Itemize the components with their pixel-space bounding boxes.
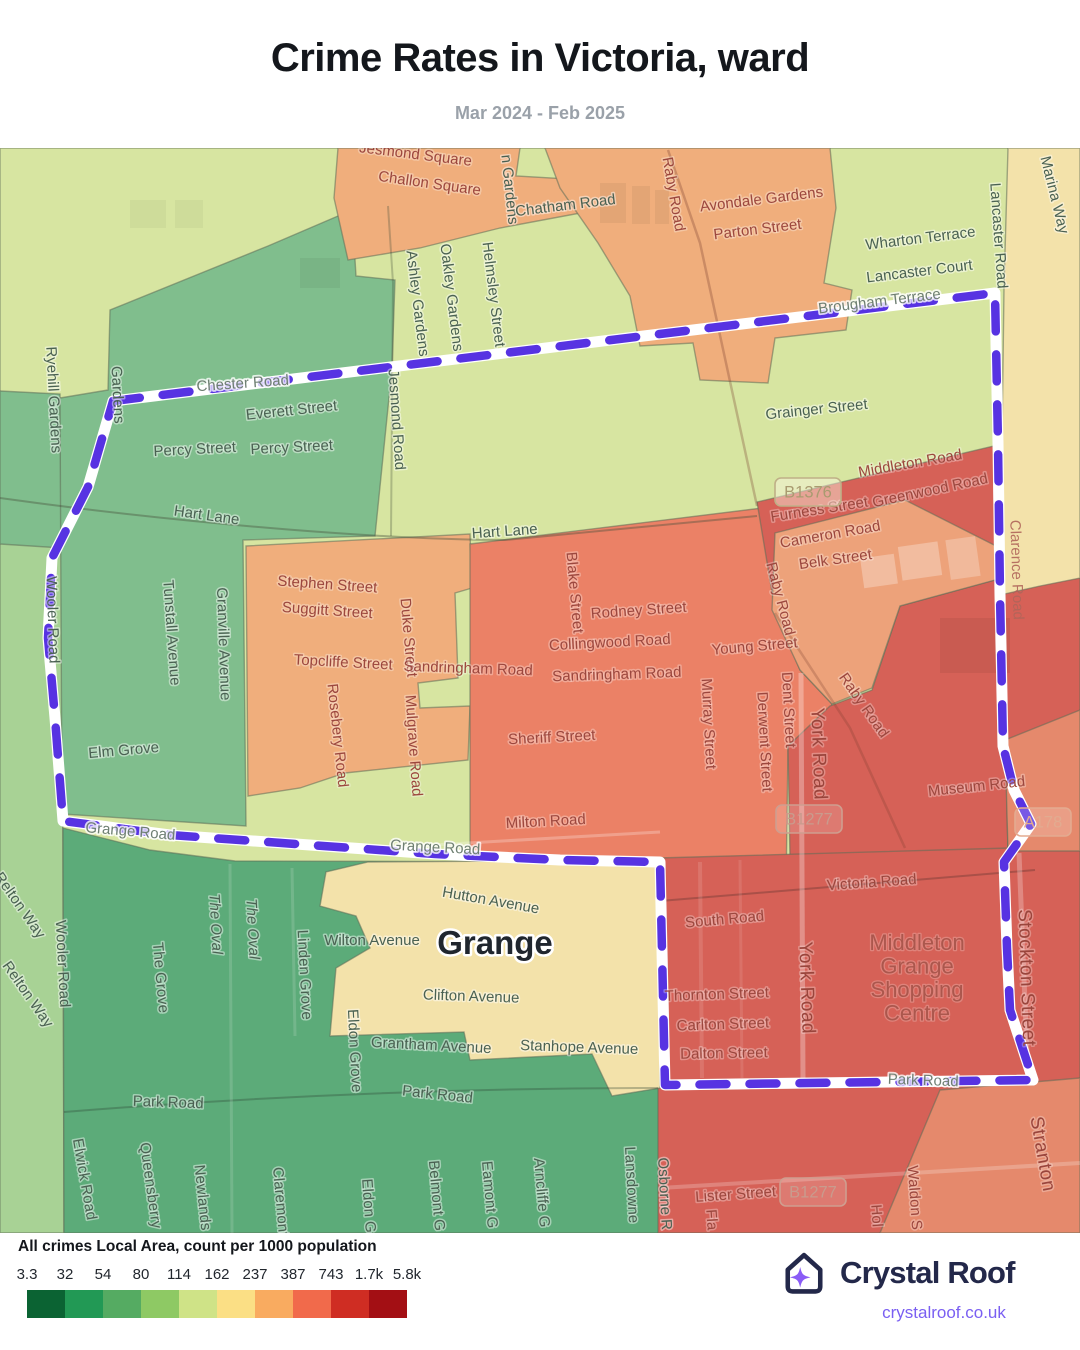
crime-map[interactable]: Jesmond SquareChallon Squaren GardensCha… [0, 148, 1080, 1233]
legend-tick: 387 [280, 1266, 305, 1283]
street-label: Wilton Avenue [324, 932, 420, 949]
svg-text:B1277: B1277 [785, 811, 833, 829]
legend-tick: 162 [204, 1266, 229, 1283]
street-label: Park Road [887, 1071, 958, 1090]
street-label: Clarence Road [1006, 520, 1026, 621]
legend-tick: 114 [167, 1266, 191, 1283]
legend-swatch [179, 1290, 217, 1318]
street-label: Dalton Street [680, 1044, 769, 1063]
legend-swatch [103, 1290, 141, 1318]
legend-tick: 80 [133, 1266, 150, 1283]
brand-name: Crystal Roof [840, 1255, 1015, 1291]
street-label: York Road [794, 941, 818, 1034]
site-link[interactable]: crystalroof.co.uk [882, 1303, 1006, 1323]
shopping-centre-label: Grange [880, 954, 953, 979]
svg-text:B1376: B1376 [784, 484, 832, 502]
page-title: Crime Rates in Victoria, ward [0, 0, 1080, 81]
legend-swatch [217, 1290, 255, 1318]
legend-tick: 743 [318, 1266, 343, 1283]
street-label: Hol [867, 1204, 886, 1228]
svg-text:B1277: B1277 [789, 1184, 837, 1202]
shopping-centre-label: Shopping [871, 977, 964, 1002]
legend-tick: 32 [57, 1266, 74, 1283]
street-label: Fla [702, 1209, 720, 1232]
legend-tick: 237 [242, 1266, 267, 1283]
street-label: Park Road [132, 1093, 203, 1112]
legend-tick: 1.7k [355, 1266, 383, 1283]
street-label: Gardens [107, 366, 127, 424]
date-range-subtitle: Mar 2024 - Feb 2025 [0, 103, 1080, 124]
legend-title: All crimes Local Area, count per 1000 po… [18, 1238, 560, 1256]
road-badge: B1376 [775, 478, 841, 506]
street-label: York Road [806, 707, 830, 800]
legend-swatch [293, 1290, 331, 1318]
legend-swatch [141, 1290, 179, 1318]
map-legend: All crimes Local Area, count per 1000 po… [0, 1238, 560, 1318]
shopping-centre-label: Centre [884, 1001, 950, 1026]
legend-swatch [331, 1290, 369, 1318]
street-label: Carlton Street [676, 1014, 770, 1034]
map-regions [0, 148, 1080, 1233]
street-label: Clifton Avenue [423, 986, 520, 1006]
legend-tick: 5.8k [393, 1266, 421, 1283]
street-label: The Oval [242, 898, 262, 960]
legend-swatch [27, 1290, 65, 1318]
page-header: Crime Rates in Victoria, ward Mar 2024 -… [0, 0, 1080, 124]
legend-tick: 3.3 [17, 1266, 38, 1283]
street-label: Wooler Road [42, 576, 62, 664]
shopping-centre-label: Middleton [869, 930, 964, 955]
road-badge: B1277 [776, 805, 842, 833]
legend-color-bar [27, 1290, 407, 1318]
svg-text:A178: A178 [1024, 814, 1063, 832]
place-label: Grange [437, 924, 553, 961]
legend-swatch [255, 1290, 293, 1318]
brand-footer: Crystal Roof [778, 1247, 1015, 1299]
crystal-roof-logo-icon [778, 1247, 830, 1299]
street-label: The Oval [205, 893, 225, 955]
legend-swatch [65, 1290, 103, 1318]
legend-ticks: 3.33254801141622373877431.7k5.8k [0, 1266, 560, 1286]
road-badge: B1277 [780, 1178, 846, 1206]
road-badge: A178 [1015, 808, 1071, 836]
legend-swatch [369, 1290, 407, 1318]
legend-tick: 54 [95, 1266, 112, 1283]
